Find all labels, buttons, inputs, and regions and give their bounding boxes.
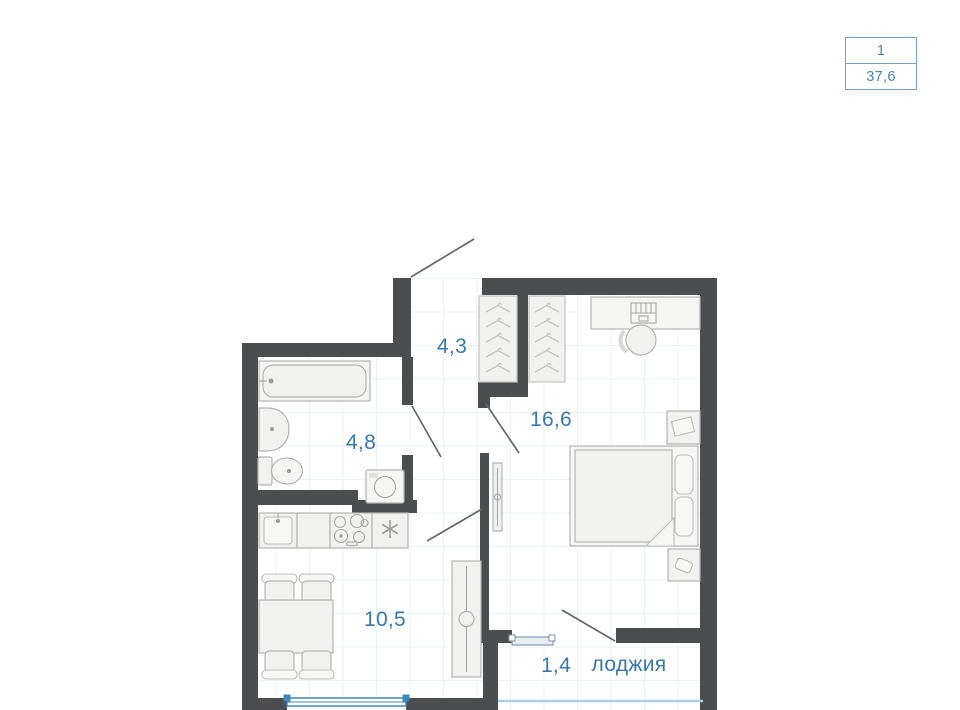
kitchen-faucet-icon xyxy=(276,519,280,523)
wall-bottom-mid xyxy=(403,698,498,710)
dining-set xyxy=(259,574,334,679)
bathtub xyxy=(259,361,370,401)
bed-mattress xyxy=(575,450,672,542)
tall-cabinet xyxy=(452,561,481,677)
wall-left xyxy=(242,343,258,710)
loggia-window xyxy=(509,635,555,645)
wardrobe-body xyxy=(529,296,565,382)
chair-seat-round xyxy=(626,325,656,355)
sink-drain-icon xyxy=(270,427,274,431)
bed xyxy=(570,446,698,546)
wall-bathroom-right-upper xyxy=(402,357,413,405)
rooms-count: 1 xyxy=(846,38,916,64)
chair-seat xyxy=(265,651,294,672)
toilet-tank xyxy=(258,457,272,485)
wall-bathroom-bottom xyxy=(258,490,358,505)
washer-panel xyxy=(369,473,378,478)
room-name-loggia: лоджия xyxy=(592,653,667,677)
chair-seat xyxy=(302,581,331,602)
pillow xyxy=(675,497,693,536)
wardrobe-body xyxy=(479,296,517,382)
bathroom-sink xyxy=(259,408,289,451)
apartment-info-card: 1 37,6 xyxy=(845,37,917,90)
wall-bathroom-top xyxy=(242,343,411,357)
bathtub-faucet-icon xyxy=(269,379,274,384)
room-area-hallway: 4,3 xyxy=(437,335,467,359)
loggia-window-end-right xyxy=(549,635,555,641)
picture-frame xyxy=(667,411,700,444)
window-end-left xyxy=(284,695,291,702)
wardrobe-bedroom xyxy=(529,296,565,382)
toilet-drain-icon xyxy=(287,469,291,473)
toilet xyxy=(258,457,303,485)
loggia-window-end-left xyxy=(509,635,515,641)
room-area-bedroom: 16,6 xyxy=(530,408,572,432)
room-area-loggia: 1,4 xyxy=(541,654,571,678)
total-area: 37,6 xyxy=(846,64,916,89)
chair-back xyxy=(262,670,297,679)
pillow xyxy=(675,455,693,494)
bathroom-door-swing-line xyxy=(412,406,441,457)
room-area-bathroom: 4,8 xyxy=(346,431,376,455)
wall-closet-bottom xyxy=(478,382,528,397)
dining-table xyxy=(259,600,333,653)
room-area-kitchen: 10,5 xyxy=(364,608,406,632)
washing-machine xyxy=(366,470,404,503)
kitchen-door-swing-line xyxy=(427,509,482,541)
wall-top xyxy=(482,278,717,295)
chair-back xyxy=(299,670,334,679)
nightstand xyxy=(668,549,700,581)
desk xyxy=(591,297,700,329)
bathtub-inner xyxy=(263,365,366,397)
cabinet-handle-icon xyxy=(459,612,474,627)
sink-bowl xyxy=(259,408,289,451)
entrance-door-swing-line xyxy=(411,239,474,277)
floorplan-page: 4,3 4,8 16,6 10,5 1,4 лоджия 1 37,6 xyxy=(0,0,960,710)
chair-seat xyxy=(302,651,331,672)
loggia-window-frame xyxy=(512,637,553,645)
loggia-door-swing-line xyxy=(562,610,615,641)
kitchen-counter xyxy=(259,513,408,548)
wall-right xyxy=(700,278,717,710)
mirror xyxy=(493,463,502,531)
wall-bottom-left xyxy=(242,698,290,710)
window-end-right xyxy=(403,695,410,702)
kitchen-window xyxy=(284,695,410,710)
floorplan-drawing xyxy=(0,0,960,710)
burner-dot xyxy=(339,534,342,537)
wall-loggia-top xyxy=(616,628,700,643)
wall-closet-right xyxy=(517,295,528,397)
chair-seat xyxy=(265,581,294,602)
wardrobe-closet xyxy=(479,296,517,382)
wall-bedroom-bottom xyxy=(488,630,512,643)
bedroom-door-swing-line xyxy=(486,404,519,453)
